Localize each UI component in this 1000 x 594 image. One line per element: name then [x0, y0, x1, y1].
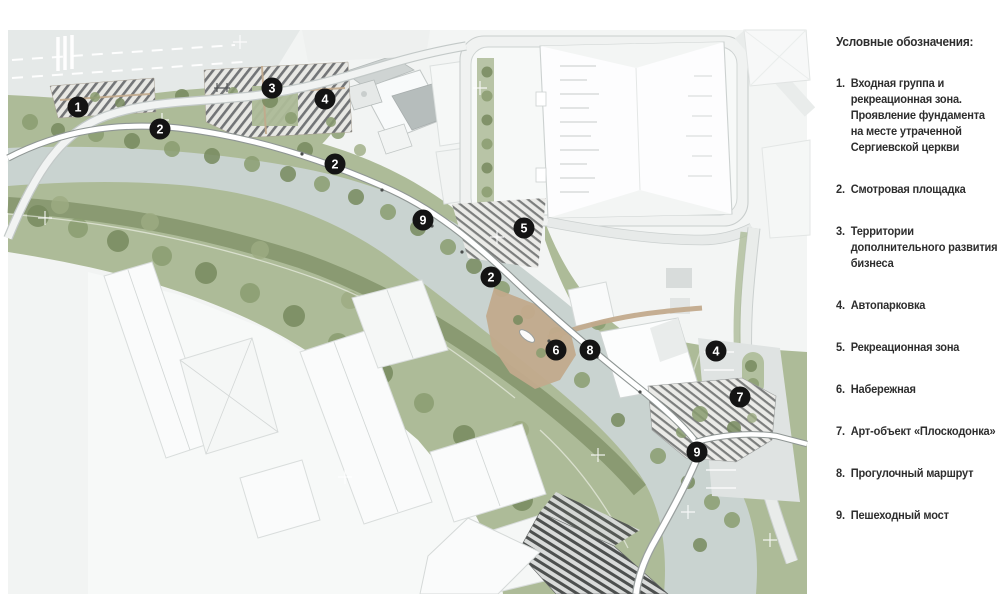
legend-item-number: 5.	[836, 339, 851, 355]
legend-item-4: 4.Автопарковка	[836, 297, 998, 313]
legend-item-text: Входная группа и рекреационная зона. Про…	[851, 75, 998, 155]
legend-item-number: 3.	[836, 223, 851, 271]
legend-item-text: Набережная	[851, 381, 998, 397]
legend-item-text: Прогулочный маршрут	[851, 465, 998, 481]
legend-item-number: 1.	[836, 75, 851, 155]
legend-item-text: Территории дополнительного развития бизн…	[851, 223, 998, 271]
legend-item-number: 4.	[836, 297, 851, 313]
legend-item-text: Пешеходный мост	[851, 507, 998, 523]
legend-item-number: 7.	[836, 423, 851, 439]
legend-item-7: 7.Арт-объект «Плоскодонка»	[836, 423, 998, 439]
legend-item-number: 6.	[836, 381, 851, 397]
legend-item-number: 9.	[836, 507, 851, 523]
legend-item-number: 8.	[836, 465, 851, 481]
legend-item-1: 1.Входная группа и рекреационная зона. П…	[836, 75, 998, 155]
legend-item-text: Арт-объект «Плоскодонка»	[851, 423, 998, 439]
legend-item-2: 2.Смотровая площадка	[836, 181, 998, 197]
legend-item-number: 2.	[836, 181, 851, 197]
legend-title: Условные обозначения:	[836, 34, 998, 49]
site-plan: 1234295268479	[0, 0, 815, 594]
legend: Условные обозначения: 1.Входная группа и…	[836, 34, 998, 549]
legend-item-5: 5.Рекреационная зона	[836, 339, 998, 355]
legend-item-6: 6.Набережная	[836, 381, 998, 397]
legend-items: 1.Входная группа и рекреационная зона. П…	[836, 75, 998, 523]
market-building-block	[460, 36, 748, 226]
legend-item-9: 9.Пешеходный мост	[836, 507, 998, 523]
site-plan-svg	[0, 0, 815, 594]
legend-item-text: Смотровая площадка	[851, 181, 998, 197]
legend-item-text: Автопарковка	[851, 297, 998, 313]
legend-item-text: Рекреационная зона	[851, 339, 998, 355]
legend-item-8: 8.Прогулочный маршрут	[836, 465, 998, 481]
legend-item-3: 3.Территории дополнительного развития би…	[836, 223, 998, 271]
